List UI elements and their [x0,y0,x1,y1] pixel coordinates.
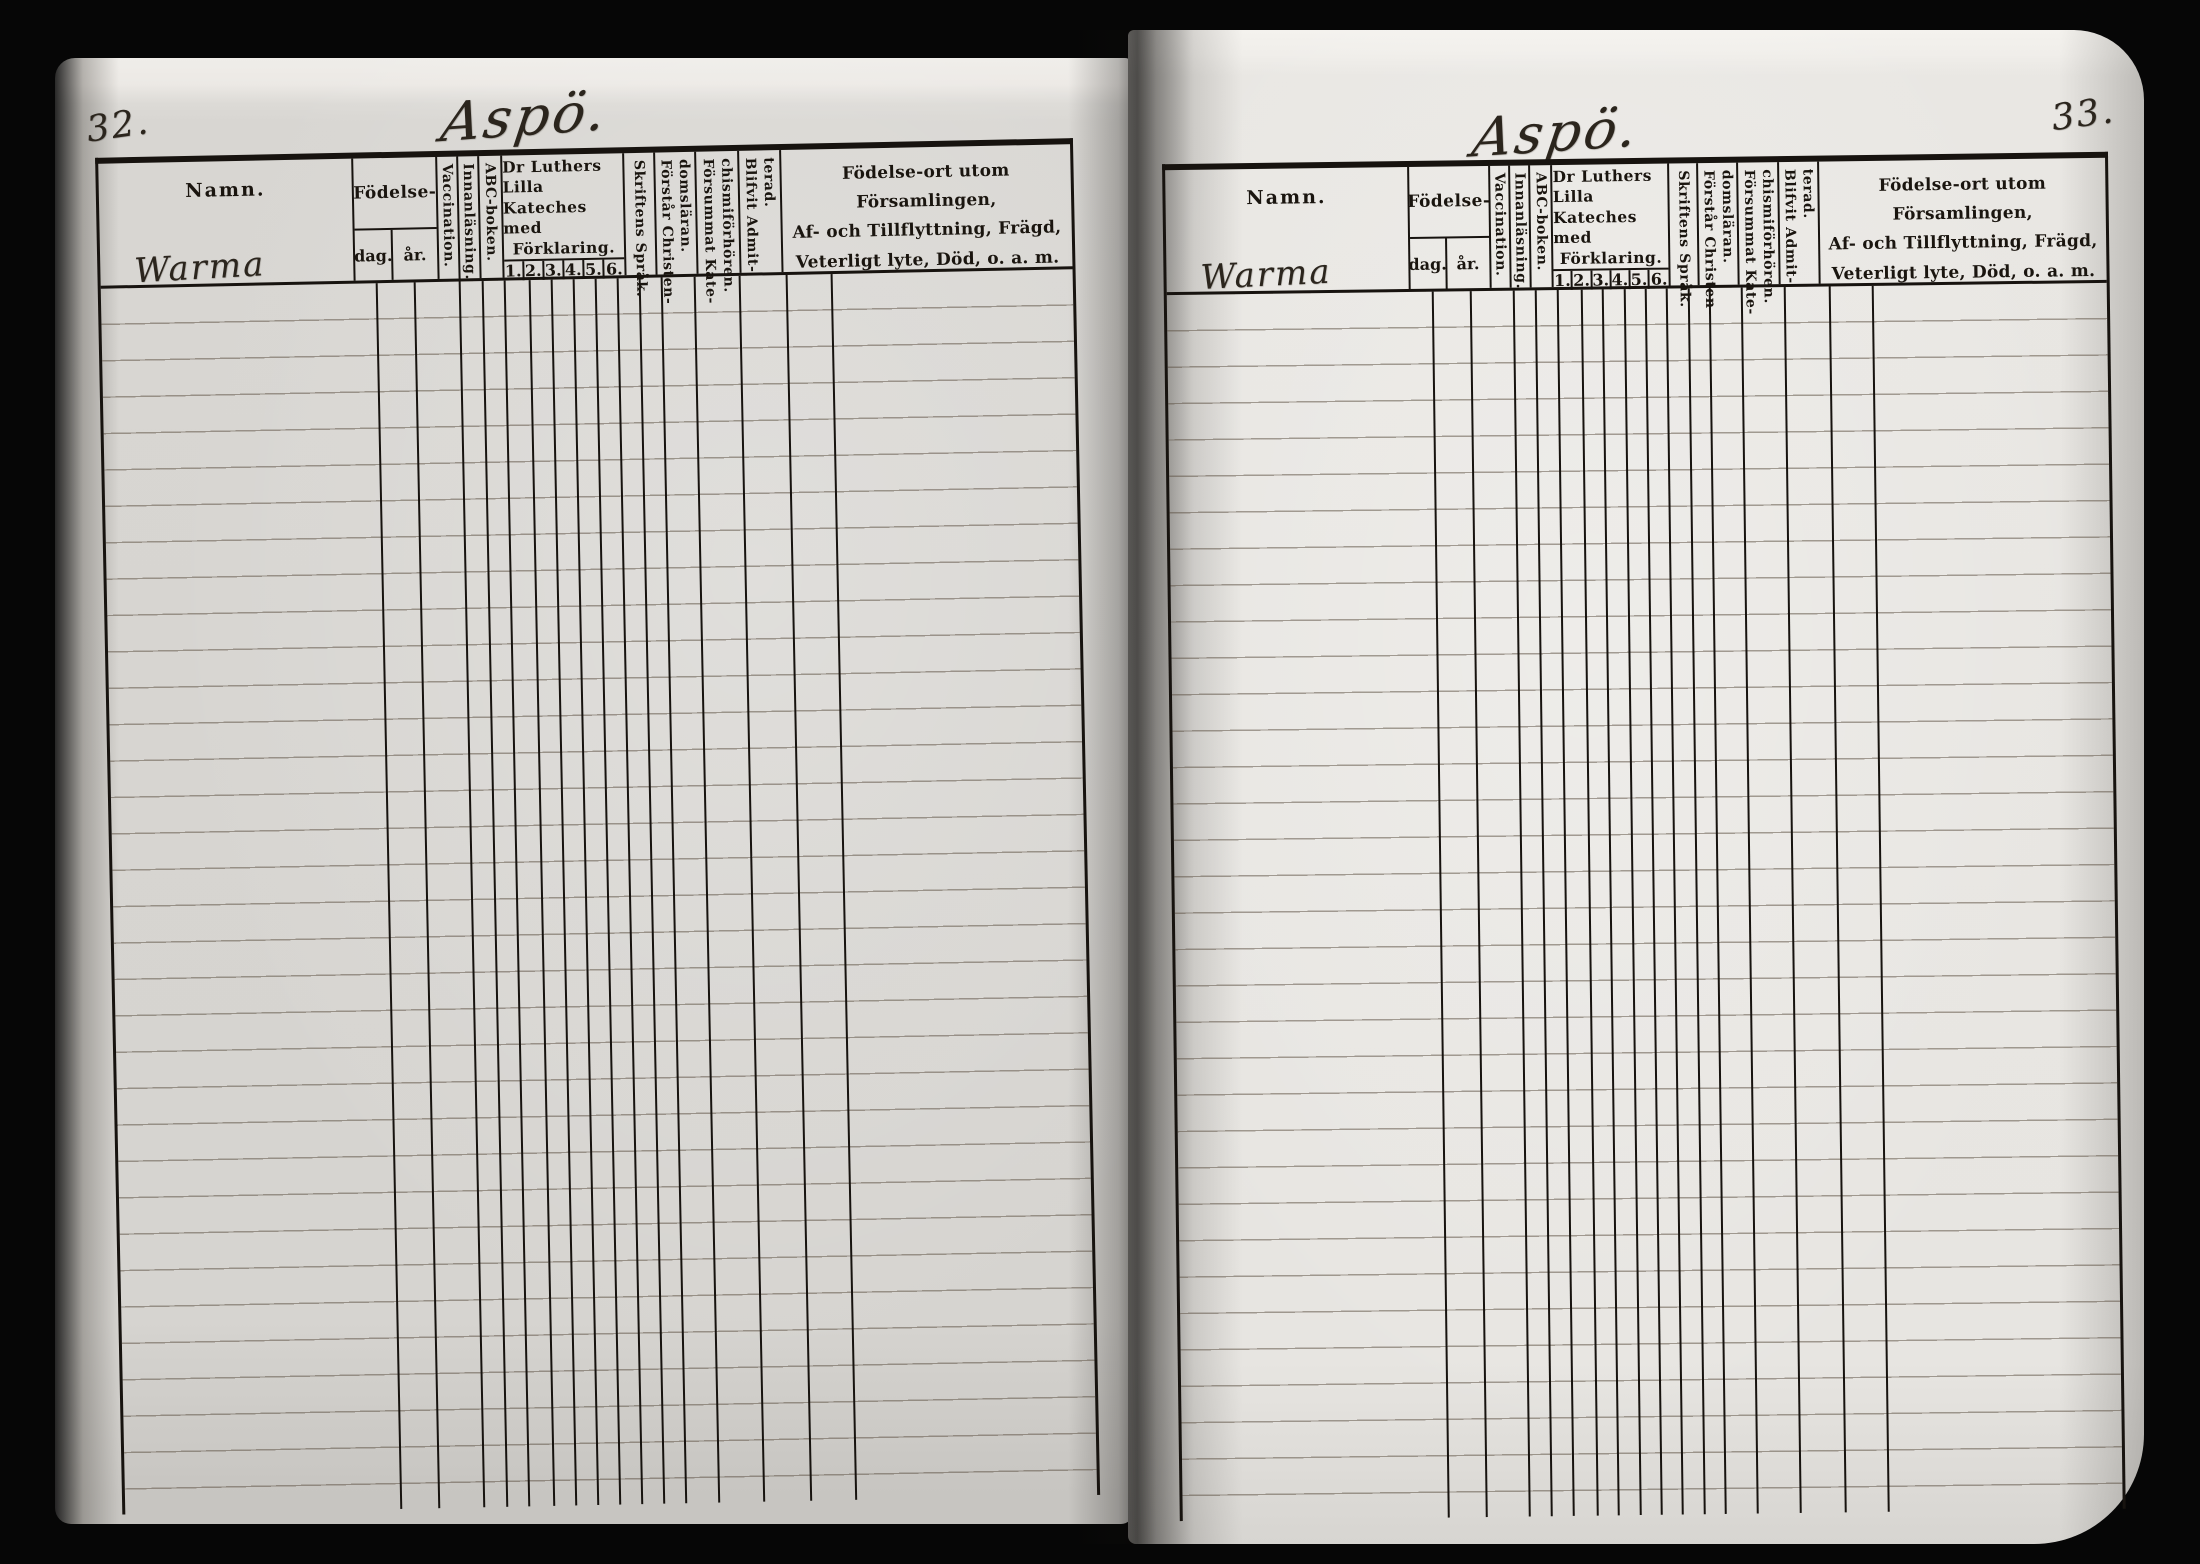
catechism-title-line: Dr Luthers Lilla [502,155,623,198]
catechism-grade-3: 3. [1592,271,1611,290]
catechism-grade-6: 6. [1649,270,1668,289]
left-page-content: 32. Aspö. Namn. Warma Födelse- dag. år. … [95,138,1100,1514]
right-page-content: 33. Aspö. Namn. Warma Födelse- dag. år. … [1162,152,2126,1521]
catechism-title: Dr Luthers Lilla Kateches med Förklaring… [502,153,624,262]
catechism-title: Dr Luthers Lilla Kateches med Förklaring… [1552,164,1668,272]
birth-group-label: Födelse- [353,157,436,231]
scripture-language-label: Skriftens Språk. [1674,170,1694,285]
column-header-missed-catechism: Försummat Kate- chismiförhören. [1738,162,1781,285]
catechism-grade-5: 5. [584,260,604,279]
remarks-line: Födelse-ort utom Församlingen, [1819,169,2106,231]
missed-catechism-line: Försummat Kate- [1740,169,1760,284]
catechism-grade-5: 5. [1630,270,1649,289]
column-header-birth-day: dag. [1410,238,1447,288]
ledger-table-left: Namn. Warma Födelse- dag. år. Vaccinatio… [95,138,1100,1514]
column-header-vaccination: Vaccination. [437,157,461,279]
catechism-title-line: Dr Luthers Lilla [1552,166,1667,208]
handwritten-village-name: Warma [133,244,266,291]
column-header-understands-christianity: Förstår Christen- domsläran. [655,152,699,275]
column-header-birth: Födelse- dag. år. [1409,166,1491,289]
ledger-table-right: Namn. Warma Födelse- dag. år. Vaccinatio… [1162,152,2126,1521]
column-header-scripture-language: Skriftens Språk. [1669,163,1700,285]
missed-catechism-line: chismiförhören. [1758,169,1778,284]
column-header-reading: Innanläsning. [1510,165,1532,287]
abc-book-label: ABC-boken. [480,163,500,278]
column-header-vaccination: Vaccination. [1490,166,1512,288]
catechism-title-line: Förklaring. [512,237,615,260]
column-header-abc-book: ABC-boken. [479,156,504,278]
vaccination-label: Vaccination. [1490,173,1510,288]
body-column-remarks [1874,283,2123,1512]
remarks-line: Af- och Tillflyttning, Frägd, [1828,227,2097,260]
remarks-line: Födelse-ort utom Församlingen, [781,155,1072,219]
admitted-line: terad. [759,157,779,272]
column-header-scripture-language: Skriftens Språk. [624,153,657,276]
parish-title-handwritten-left: Aspö. [437,79,612,154]
body-column-namn [101,283,402,1514]
catechism-grade-1: 1. [1554,271,1573,290]
catechism-title-line: Kateches med [1553,206,1668,248]
column-header-namn: Namn. Warma [98,159,356,286]
namn-label: Namn. [1165,167,1407,210]
admitted-line: terad. [1798,169,1818,284]
catechism-grade-2: 2. [1573,271,1592,290]
body-column-remarks [832,269,1097,1500]
table-header-row: Namn. Warma Födelse- dag. år. Vaccinatio… [1165,158,2107,295]
page-number-right: 33. [2049,90,2117,139]
catechism-grade-1: 1. [504,261,524,280]
admitted-line: Blifvit Admit- [741,157,761,272]
abc-book-label: ABC-boken. [1531,172,1551,287]
remarks-line: Veterligt lyte, Död, o. a. m. [1831,257,2095,290]
column-header-birth-day: dag. [355,230,394,281]
namn-label: Namn. [98,159,352,204]
column-header-catechism: Dr Luthers Lilla Kateches med Förklaring… [1552,164,1670,288]
body-column-namn [1167,292,1450,1521]
column-header-remarks: Födelse-ort utom Församlingen, Af- och T… [781,144,1073,272]
ledger-book-scan: 32. Aspö. Namn. Warma Födelse- dag. år. … [0,0,2200,1564]
understands-line: Förstår Christen- [656,159,676,274]
understands-line: Förstår Christen- [1699,170,1719,285]
column-header-catechism: Dr Luthers Lilla Kateches med Förklaring… [502,153,627,277]
admitted-line: Blifvit Admit- [1780,169,1800,284]
column-header-namn: Namn. Warma [1165,167,1411,292]
table-body-ruled [1167,283,2123,1521]
column-header-admitted: Blifvit Admit- terad. [1779,162,1820,285]
catechism-grade-3: 3. [544,261,564,280]
column-header-reading: Innanläsning. [458,156,481,278]
column-header-birth-year: år. [393,229,438,280]
column-header-birth-year: år. [1447,238,1490,289]
vaccination-label: Vaccination. [438,164,458,279]
birth-subcolumns: dag. år. [355,229,438,281]
understands-line: domsläran. [675,159,695,274]
column-header-understands-christianity: Förstår Christen- domsläran. [1699,163,1740,286]
reading-label: Innanläsning. [459,163,479,278]
catechism-grade-subcolumns: 1. 2. 3. 4. 5. 6. [1554,270,1669,291]
catechism-grade-6: 6. [604,259,624,278]
understands-line: domsläran. [1717,170,1737,285]
table-header-row: Namn. Warma Födelse- dag. år. Vaccinatio… [98,144,1072,288]
column-header-missed-catechism: Försummat Kate- chismiförhören. [696,151,742,274]
catechism-grade-4: 4. [1611,270,1630,289]
missed-catechism-line: Försummat Kate- [699,158,719,273]
handwritten-village-name: Warma [1200,252,1333,298]
catechism-title-line: Kateches med [503,196,624,239]
birth-group-label: Födelse- [1409,166,1489,239]
column-header-remarks: Födelse-ort utom Församlingen, Af- och T… [1819,158,2107,284]
reading-label: Innanläsning. [1510,172,1530,287]
scripture-language-label: Skriftens Språk. [629,160,649,275]
birth-subcolumns: dag. år. [1410,238,1489,289]
column-header-birth: Födelse- dag. år. [353,157,439,281]
column-header-abc-book: ABC-boken. [1530,165,1554,287]
catechism-grade-4: 4. [564,260,584,279]
catechism-title-line: Förklaring. [1560,247,1663,269]
table-body-ruled [101,269,1097,1514]
column-header-admitted: Blifvit Admit- terad. [739,150,783,273]
missed-catechism-line: chismiförhören. [717,158,737,273]
remarks-line: Veterligt lyte, Död, o. a. m. [795,243,1059,278]
catechism-grade-subcolumns: 1. 2. 3. 4. 5. 6. [504,259,625,280]
catechism-grade-2: 2. [524,261,544,280]
